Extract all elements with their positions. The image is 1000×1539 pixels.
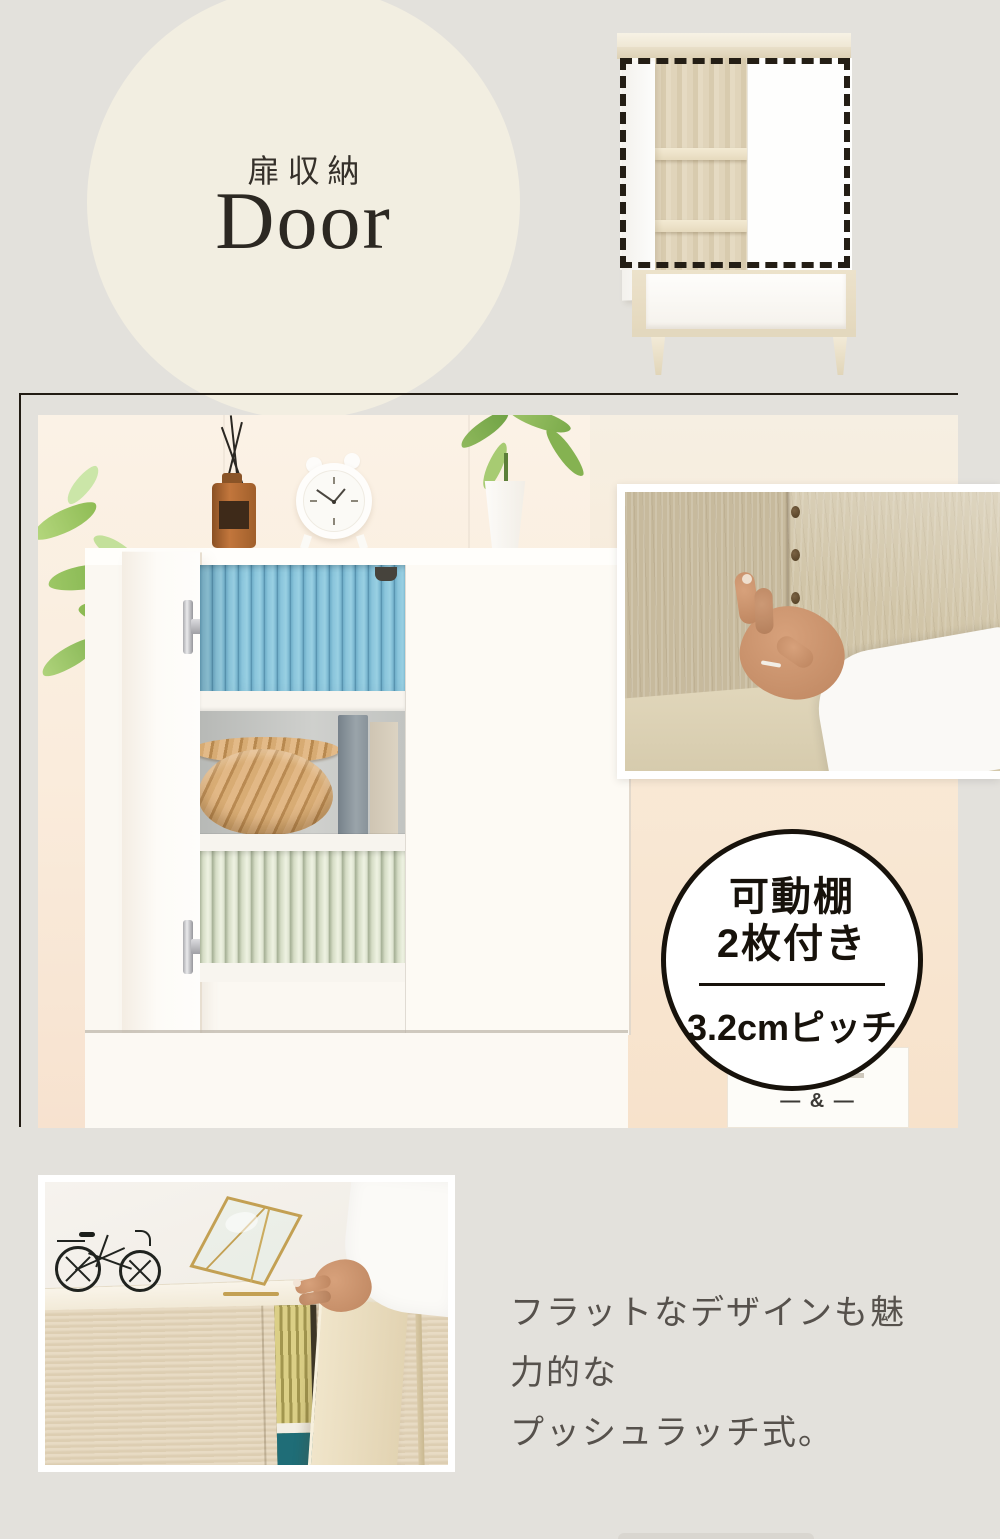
caption-line1: フラットなデザインも魅力的な [510, 1283, 930, 1403]
green-books-row [200, 851, 405, 963]
clock-tick-6 [333, 518, 335, 525]
beige-book [370, 722, 398, 834]
thumb-left-leg [648, 337, 668, 375]
shelf-pin-hole [791, 592, 800, 604]
gray-binder [338, 715, 368, 834]
closed-right-door [405, 565, 631, 1035]
alarm-clock [296, 463, 372, 539]
glass-glint [224, 1211, 259, 1234]
hero-circle: 扉収納 Door [87, 0, 520, 419]
caption-line2: プッシュラッチ式。 [510, 1403, 930, 1463]
fingernail [293, 1279, 301, 1287]
terrarium-cube [189, 1196, 302, 1286]
cabinet-thumbnail [612, 30, 858, 382]
middle-shelf [200, 711, 405, 851]
shelf-divider-upper [200, 691, 405, 711]
clock-tick-12 [333, 477, 335, 484]
inset-photo-area [625, 492, 1000, 771]
opening-bottom-sill [200, 963, 405, 982]
right-edge-seam [415, 1302, 425, 1465]
clock-tick-9 [310, 500, 317, 502]
clock-center-dot [332, 500, 336, 504]
bicycle-handlebar [135, 1230, 151, 1246]
badge-pitch: 3.2cmピッチ [666, 999, 918, 1051]
cabinet-opening [200, 565, 405, 982]
terrarium-base [223, 1292, 279, 1296]
clock-tick-3 [351, 500, 358, 502]
push-photo-area [45, 1182, 448, 1465]
middle-finger [754, 588, 774, 635]
pushed-door [307, 1298, 408, 1465]
shelf-pin-inset-photo [617, 484, 1000, 779]
fingernail [742, 574, 752, 584]
push-latch-caption: フラットなデザインも魅力的な プッシュラッチ式。 [510, 1283, 930, 1463]
badge-line1: 可動棚 [666, 874, 918, 921]
bicycle-seat-tube [95, 1235, 109, 1268]
bicycle-model [55, 1194, 175, 1298]
push-latch-photo [38, 1175, 455, 1472]
diffuser-label [219, 501, 249, 529]
bicycle-seat [79, 1232, 95, 1237]
door-hinge-icon [375, 567, 397, 581]
badge-content: 可動棚 2枚付き 3.2cmピッチ [666, 834, 918, 1051]
door-highlight-dashed-border [620, 58, 850, 268]
bicycle-rack [57, 1240, 85, 1242]
thumb-drawer-front [646, 274, 846, 329]
door-seam [261, 1306, 267, 1465]
drawer-front [85, 1033, 628, 1128]
blue-books-row [200, 565, 405, 691]
poster-ampersand: — & — [780, 1090, 856, 1113]
shelf-pin-hole [791, 549, 800, 561]
shelf-pin-hole [791, 506, 800, 518]
middle-shelf-board [200, 834, 405, 851]
bicycle-wheel-front [119, 1250, 161, 1292]
movable-shelf-badge: 可動棚 2枚付き 3.2cmピッチ [661, 829, 923, 1091]
gold-terrarium [195, 1196, 307, 1302]
badge-line2: 2枚付き [666, 921, 918, 968]
hero-title: Door [87, 174, 520, 268]
wicker-basket [200, 749, 333, 835]
thumb-top-panel [617, 33, 851, 47]
badge-divider [699, 983, 885, 986]
thumb-right-leg [830, 337, 850, 375]
next-section-hint [618, 1533, 814, 1539]
thumb-base-rail [632, 329, 856, 337]
